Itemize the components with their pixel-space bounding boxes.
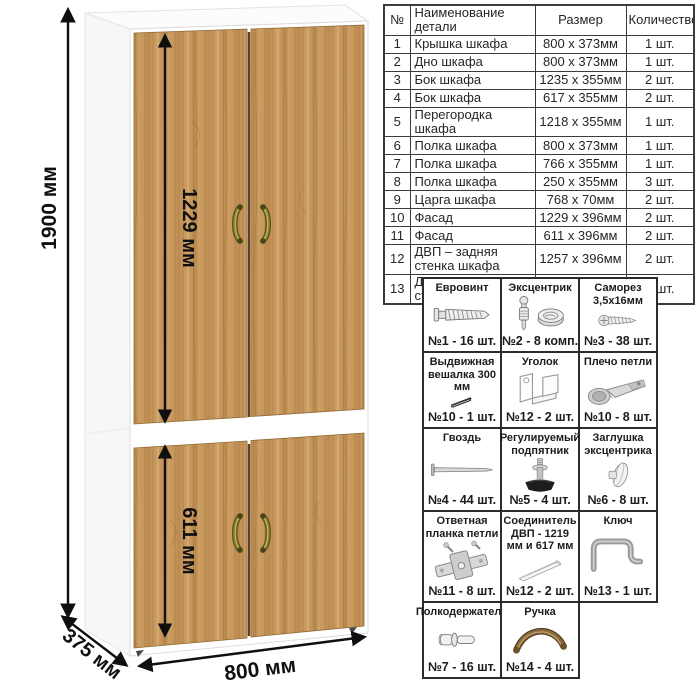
hardware-item-name: Ключ xyxy=(603,515,632,528)
part-qty-cell: 2 шт. xyxy=(626,245,694,275)
hardware-item-qty: №10 - 1 шт. xyxy=(428,410,496,425)
shelf-pin-icon xyxy=(425,619,499,660)
part-size-cell: 1218 х 355мм xyxy=(535,107,626,137)
parts-table-header-row: № Наименование детали Размер Количество xyxy=(384,5,694,35)
hardware-item-qty: №5 - 4 шт. xyxy=(509,493,570,508)
hardware-item-name: Ответная планка петли xyxy=(425,515,499,540)
part-size-cell: 1229 х 396мм xyxy=(535,209,626,227)
hardware-item-qty: №6 - 8 шт. xyxy=(587,493,648,508)
part-size-cell: 611 х 396мм xyxy=(535,227,626,245)
nail-icon xyxy=(425,445,499,493)
header-num: № xyxy=(384,5,410,35)
hardware-item-name: Уголок xyxy=(522,356,558,369)
part-name-cell: Полка шкафа xyxy=(410,155,535,173)
part-size-cell: 1257 х 396мм xyxy=(535,245,626,275)
part-number-cell: 8 xyxy=(384,173,410,191)
hardware-item-name: Соединитель ДВП - 1219 мм и 617 мм xyxy=(503,515,577,553)
part-size-cell: 800 х 373мм xyxy=(535,53,626,71)
table-row: 4 Бок шкафа 617 х 355мм 2 шт. xyxy=(384,89,694,107)
part-name-cell: Перегородка шкафа xyxy=(410,107,535,137)
part-size-cell: 768 х 70мм xyxy=(535,191,626,209)
part-name-cell: Полка шкафа xyxy=(410,173,535,191)
part-name-cell: ДВП – задняя стенка шкафа xyxy=(410,245,535,275)
part-number-cell: 7 xyxy=(384,155,410,173)
hdf-connector-icon xyxy=(503,553,577,584)
part-name-cell: Фасад xyxy=(410,227,535,245)
hardware-item-adjustable-foot: Регулируемый подпятник №5 - 4 шт. xyxy=(500,427,580,512)
upper-door-dimension-label: 1229 мм xyxy=(178,188,200,268)
height-dimension-label: 1900 мм xyxy=(38,166,61,250)
table-row: 5 Перегородка шкафа 1218 х 355мм 1 шт. xyxy=(384,107,694,137)
part-name-cell: Полка шкафа xyxy=(410,137,535,155)
part-name-cell: Фасад xyxy=(410,209,535,227)
hardware-row: Гвоздь №4 - 44 шт. Регулируемый подпятни… xyxy=(422,427,658,512)
hardware-item-qty: №4 - 44 шт. xyxy=(428,493,496,508)
hardware-item-qty: №12 - 2 шт. xyxy=(506,584,574,599)
hardware-item-qty: №1 - 16 шт. xyxy=(428,334,496,349)
part-name-cell: Бок шкафа xyxy=(410,89,535,107)
hardware-item-self-tapping-screw: Саморез 3,5х16мм №3 - 38 шт. xyxy=(578,277,658,353)
header-name: Наименование детали xyxy=(410,5,535,35)
width-dimension-label: 800 мм xyxy=(223,654,297,686)
hardware-item-qty: №12 - 2 шт. xyxy=(506,410,574,425)
hardware-item-nail: Гвоздь №4 - 44 шт. xyxy=(422,427,502,512)
cam-cap-icon xyxy=(581,457,655,493)
hardware-item-qty: №7 - 16 шт. xyxy=(428,660,496,675)
hardware-item-hinge-arm: Плечо петли №10 - 8 шт. xyxy=(578,351,658,429)
part-name-cell: Дно шкафа xyxy=(410,53,535,71)
part-qty-cell: 2 шт. xyxy=(626,71,694,89)
part-size-cell: 800 х 373мм xyxy=(535,35,626,53)
hardware-item-name: Полкодержатель xyxy=(416,606,508,619)
table-row: 3 Бок шкафа 1235 х 355мм 2 шт. xyxy=(384,71,694,89)
euro-screw-icon xyxy=(425,295,499,334)
part-size-cell: 800 х 373мм xyxy=(535,137,626,155)
table-row: 10 Фасад 1229 х 396мм 2 шт. xyxy=(384,209,694,227)
header-size: Размер xyxy=(535,5,626,35)
handle-icon xyxy=(503,619,577,660)
part-number-cell: 6 xyxy=(384,137,410,155)
hex-key-icon xyxy=(581,528,655,584)
hardware-item-hdf-connector: Соединитель ДВП - 1219 мм и 617 мм №12 -… xyxy=(500,510,580,603)
part-qty-cell: 2 шт. xyxy=(626,209,694,227)
part-qty-cell: 1 шт. xyxy=(626,107,694,137)
part-qty-cell: 1 шт. xyxy=(626,137,694,155)
corner-bracket-icon xyxy=(503,369,577,410)
cam-lock-icon xyxy=(503,295,577,334)
hardware-item-hinge-plate: Ответная планка петли №11 - 8 шт. xyxy=(422,510,502,603)
part-size-cell: 250 х 355мм xyxy=(535,173,626,191)
hardware-item-name: Плечо петли xyxy=(584,356,652,369)
part-number-cell: 5 xyxy=(384,107,410,137)
hardware-item-handle: Ручка №14 - 4 шт. xyxy=(500,601,580,679)
hardware-item-name: Выдвижная вешалка 300 мм xyxy=(425,356,499,394)
table-row: 6 Полка шкафа 800 х 373мм 1 шт. xyxy=(384,137,694,155)
cabinet-side-panel xyxy=(85,13,130,656)
header-qty: Количество xyxy=(626,5,694,35)
pull-out-hanger-icon xyxy=(425,394,499,410)
hardware-row: Ответная планка петли №11 - 8 шт. Соедин… xyxy=(422,510,658,603)
part-qty-cell: 2 шт. xyxy=(626,227,694,245)
hardware-item-name: Евровинт xyxy=(435,282,488,295)
hardware-item-qty: №13 - 1 шт. xyxy=(584,584,652,599)
assembly-diagram-page: 1900 мм 1229 мм 611 мм 800 мм 375 мм № Н… xyxy=(0,0,700,700)
part-qty-cell: 1 шт. xyxy=(626,35,694,53)
table-row: 9 Царга шкафа 768 х 70мм 2 шт. xyxy=(384,191,694,209)
hardware-grid: Евровинт №1 - 16 шт. Эксцентрик №2 - 8 к… xyxy=(422,277,658,679)
hardware-item-qty: №2 - 8 комп. xyxy=(502,334,578,349)
part-qty-cell: 2 шт. xyxy=(626,191,694,209)
part-qty-cell: 2 шт. xyxy=(626,89,694,107)
self-tapping-screw-icon xyxy=(581,307,655,334)
hardware-item-name: Ручка xyxy=(524,606,555,619)
hardware-row: Евровинт №1 - 16 шт. Эксцентрик №2 - 8 к… xyxy=(422,277,658,353)
hardware-item-qty: №14 - 4 шт. xyxy=(506,660,574,675)
hardware-item-name: Регулируемый подпятник xyxy=(500,432,580,457)
part-size-cell: 1235 х 355мм xyxy=(535,71,626,89)
part-qty-cell: 1 шт. xyxy=(626,155,694,173)
hardware-item-cam-lock: Эксцентрик №2 - 8 комп. xyxy=(500,277,580,353)
table-row: 2 Дно шкафа 800 х 373мм 1 шт. xyxy=(384,53,694,71)
part-number-cell: 10 xyxy=(384,209,410,227)
part-name-cell: Крышка шкафа xyxy=(410,35,535,53)
part-number-cell: 1 xyxy=(384,35,410,53)
part-size-cell: 766 х 355мм xyxy=(535,155,626,173)
hardware-item-name: Саморез 3,5х16мм xyxy=(581,282,655,307)
table-row: 7 Полка шкафа 766 х 355мм 1 шт. xyxy=(384,155,694,173)
part-number-cell: 3 xyxy=(384,71,410,89)
part-number-cell: 13 xyxy=(384,274,410,304)
hardware-item-cam-cap: Заглушка эксцентрика №6 - 8 шт. xyxy=(578,427,658,512)
table-row: 8 Полка шкафа 250 х 355мм 3 шт. xyxy=(384,173,694,191)
parts-table-body: 1 Крышка шкафа 800 х 373мм 1 шт. 2 Дно ш… xyxy=(384,35,694,304)
part-number-cell: 12 xyxy=(384,245,410,275)
hardware-item-qty: №10 - 8 шт. xyxy=(584,410,652,425)
hinge-plate-icon xyxy=(425,540,499,584)
hardware-item-qty: №11 - 8 шт. xyxy=(428,584,496,599)
hardware-item-corner-bracket: Уголок №12 - 2 шт. xyxy=(500,351,580,429)
part-qty-cell: 1 шт. xyxy=(626,53,694,71)
parts-table: № Наименование детали Размер Количество … xyxy=(383,4,695,305)
hardware-item-name: Гвоздь xyxy=(443,432,481,445)
part-number-cell: 4 xyxy=(384,89,410,107)
part-number-cell: 11 xyxy=(384,227,410,245)
table-row: 11 Фасад 611 х 396мм 2 шт. xyxy=(384,227,694,245)
hardware-item-euro-screw: Евровинт №1 - 16 шт. xyxy=(422,277,502,353)
part-number-cell: 2 xyxy=(384,53,410,71)
hardware-row: Полкодержатель №7 - 16 шт. Ручка №14 - 4… xyxy=(422,601,658,679)
wardrobe-illustration: 1900 мм 1229 мм 611 мм 800 мм 375 мм xyxy=(0,0,420,700)
hardware-item-name: Заглушка эксцентрика xyxy=(581,432,655,457)
hardware-item-name: Эксцентрик xyxy=(508,282,571,295)
part-name-cell: Бок шкафа xyxy=(410,71,535,89)
part-name-cell: Царга шкафа xyxy=(410,191,535,209)
part-qty-cell: 3 шт. xyxy=(626,173,694,191)
table-row: 12 ДВП – задняя стенка шкафа 1257 х 396м… xyxy=(384,245,694,275)
table-row: 1 Крышка шкафа 800 х 373мм 1 шт. xyxy=(384,35,694,53)
hardware-item-hex-key: Ключ №13 - 1 шт. xyxy=(578,510,658,603)
hardware-item-pull-out-hanger: Выдвижная вешалка 300 мм №10 - 1 шт. xyxy=(422,351,502,429)
part-number-cell: 9 xyxy=(384,191,410,209)
hinge-arm-icon xyxy=(581,369,655,410)
lower-door-dimension-label: 611 мм xyxy=(178,507,200,574)
hardware-item-qty: №3 - 38 шт. xyxy=(584,334,652,349)
hardware-row: Выдвижная вешалка 300 мм №10 - 1 шт. Уго… xyxy=(422,351,658,429)
hardware-item-shelf-pin: Полкодержатель №7 - 16 шт. xyxy=(422,601,502,679)
part-size-cell: 617 х 355мм xyxy=(535,89,626,107)
adjustable-foot-icon xyxy=(503,457,577,493)
